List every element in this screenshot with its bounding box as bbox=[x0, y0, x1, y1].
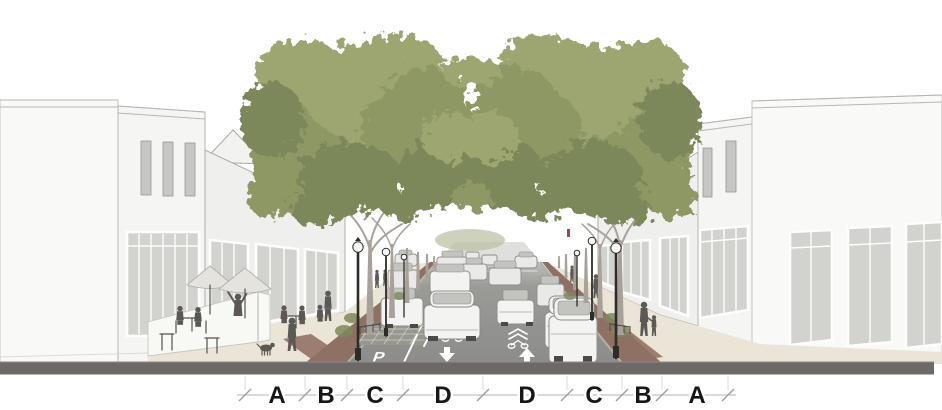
storefront-window bbox=[790, 230, 832, 345]
section-cut-band bbox=[0, 362, 934, 375]
distant-foliage bbox=[435, 229, 505, 251]
storefront-window bbox=[660, 236, 688, 316]
dimension-label: A bbox=[688, 382, 705, 409]
building-right-two-story bbox=[698, 117, 752, 363]
red-sign bbox=[567, 229, 570, 237]
dimension-label: C bbox=[366, 382, 383, 409]
storefront-window bbox=[622, 240, 650, 300]
upper-window bbox=[703, 148, 712, 197]
suv-oncoming-front bbox=[424, 291, 480, 341]
car-oncoming bbox=[430, 264, 470, 294]
dimension-label: D bbox=[518, 382, 535, 409]
upper-window bbox=[726, 141, 736, 192]
car-away bbox=[489, 261, 521, 285]
storefront-window bbox=[906, 222, 942, 348]
street-section-rendering: P P bbox=[0, 0, 942, 410]
building-right-far bbox=[752, 95, 942, 363]
upper-window bbox=[141, 141, 151, 195]
dimension-label: A bbox=[268, 382, 285, 409]
car-parked-right-foreground bbox=[549, 298, 597, 363]
tree-canopy-left bbox=[240, 34, 487, 225]
storefront-window bbox=[700, 226, 748, 318]
storefront-window bbox=[848, 226, 892, 346]
upper-window bbox=[163, 142, 173, 196]
upper-window bbox=[185, 143, 195, 196]
tree-canopy-right bbox=[455, 34, 702, 225]
dimension-label: C bbox=[585, 382, 602, 409]
dimension-label: B bbox=[317, 382, 334, 409]
building-left-far bbox=[0, 100, 118, 363]
dimension-label: B bbox=[634, 382, 651, 409]
dimension-label: D bbox=[434, 382, 451, 409]
